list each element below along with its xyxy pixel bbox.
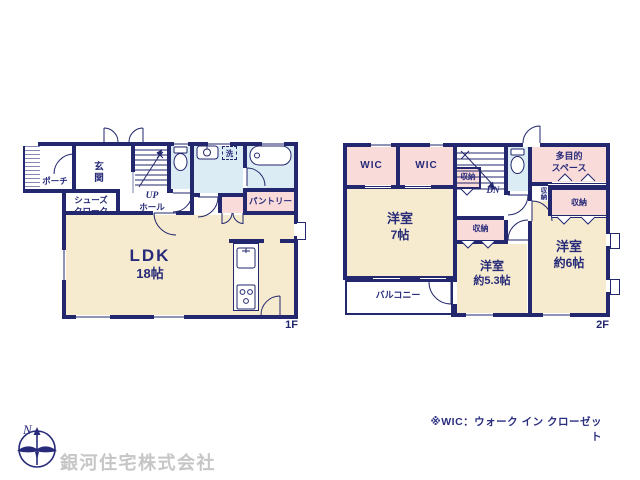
wall	[167, 142, 171, 193]
room-label-multipurpose-1: 多目的	[532, 151, 606, 162]
window	[466, 313, 493, 317]
room-label-laundry: 洗	[222, 149, 237, 158]
kitchen-counter	[233, 243, 259, 311]
room-label-yoshitsu7: 洋室	[347, 211, 453, 227]
stairs-up-1f	[135, 149, 167, 187]
sliding-door	[548, 183, 606, 186]
room-label-storage-by-stairs: 収納	[455, 172, 481, 181]
window	[174, 142, 188, 146]
room-toilet-1f	[171, 146, 190, 189]
room-toilet-2f	[508, 147, 528, 191]
wic-note: ※WIC：ウォーク イン クローゼット	[420, 414, 602, 444]
room-label-shoes-closet: シューズクローク	[70, 195, 112, 216]
company-watermark: 銀河住宅株式会社	[60, 449, 216, 475]
wall	[167, 189, 173, 193]
room-label-ldk-size: 18帖	[108, 266, 192, 282]
room-label-multipurpose-2: スペース	[532, 163, 606, 174]
floor-label-2f: 2F	[587, 319, 609, 331]
floor-plan-page: { "colors": { "wall": "#23276e", "label_…	[0, 0, 640, 480]
room-label-yoshitsu6: 洋室	[532, 239, 606, 255]
stairs-label-hall: ホール	[135, 202, 169, 212]
floor-plan-1f: ポーチ 玄関 シューズクローク UP ホール 洗 パントリー LDK 18帖 1…	[16, 138, 316, 350]
wall	[243, 188, 298, 192]
window	[430, 143, 443, 147]
wall	[391, 185, 405, 189]
window	[371, 143, 391, 147]
room-label-porch: ポーチ	[36, 176, 74, 186]
window-gap	[606, 280, 610, 292]
wall	[453, 240, 508, 244]
room-label-wic-right: WIC	[400, 160, 453, 172]
wall	[347, 185, 365, 189]
window-gap	[294, 224, 298, 236]
wall	[131, 142, 135, 172]
room-closet-ldk	[222, 197, 243, 213]
wall	[218, 197, 222, 213]
sliding-door	[365, 186, 391, 189]
window-gap	[523, 143, 540, 147]
window	[543, 313, 570, 317]
sliding-window	[373, 277, 400, 280]
wall	[190, 142, 194, 215]
stairs-label-dn: DN	[481, 185, 505, 196]
wall	[552, 186, 606, 190]
floor-plan-2f: WIC WIC 収納 DN 多目的 スペース 収納 収納 収納 洋室 7帖 洋室…	[343, 141, 623, 353]
window	[62, 250, 66, 280]
window	[262, 142, 284, 146]
window	[610, 233, 620, 249]
window	[610, 279, 620, 295]
wall	[504, 220, 508, 240]
window	[154, 315, 184, 319]
room-label-yoshitsu6-size: 約6帖	[532, 256, 606, 270]
room-label-storage-mid: 収納	[457, 224, 504, 234]
compass-icon: N	[14, 418, 60, 472]
room-label-yoshitsu53: 洋室	[457, 259, 527, 273]
room-label-entrance: 玄関	[89, 157, 103, 187]
closet-front	[552, 215, 606, 218]
wall	[194, 193, 200, 197]
wall	[23, 189, 120, 193]
room-label-yoshitsu53-size: 約5.3帖	[457, 275, 527, 288]
window-gap	[606, 234, 610, 246]
wall	[243, 142, 247, 168]
room-label-storage-cell: 収納	[533, 184, 546, 202]
sliding-door	[405, 186, 431, 189]
floor-label-1f: 1F	[276, 319, 298, 331]
sliding-window	[420, 277, 446, 280]
room-label-wic-left: WIC	[347, 160, 396, 172]
wall	[243, 211, 298, 215]
room-label-yoshitsu7-size: 7帖	[347, 228, 453, 242]
stairs-label-up: UP	[141, 191, 163, 202]
wall	[457, 216, 504, 220]
room-bath	[247, 146, 294, 188]
half-wall	[132, 172, 134, 193]
room-label-storage-right: 収納	[552, 198, 606, 208]
kitchen-wall	[280, 239, 294, 243]
room-label-ldk: LDK	[108, 246, 192, 266]
window	[76, 315, 110, 319]
compass-north-letter: N	[22, 422, 33, 437]
room-label-pantry: パントリー	[245, 196, 296, 206]
room-label-balcony: バルコニー	[345, 290, 451, 301]
